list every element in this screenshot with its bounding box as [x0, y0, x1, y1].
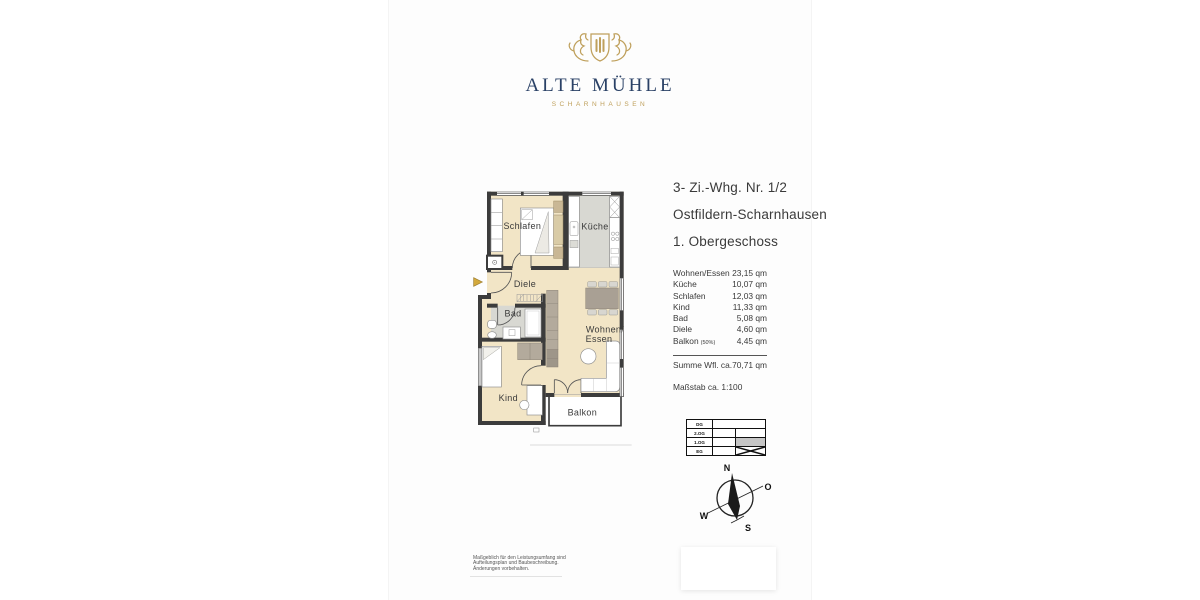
level-row-2og: 2.OG	[687, 428, 765, 437]
window-kind-left	[478, 348, 482, 385]
area-row: Wohnen/Essen 23,15 qm	[673, 268, 767, 279]
room-label: Wohnen/Essen	[673, 268, 730, 279]
area-row: Kind 11,33 qm	[673, 302, 767, 313]
level-cell	[713, 420, 765, 428]
wardrobe	[491, 199, 502, 252]
kitchen-sink	[570, 222, 578, 236]
dresser	[554, 215, 563, 244]
level-cell	[713, 447, 736, 455]
sum-row: Summe Wfl. ca. 70,71 qm	[673, 360, 767, 371]
tv-board	[547, 290, 558, 349]
compass-n-label: N	[724, 463, 731, 473]
level-row-dg: DG	[687, 420, 765, 428]
level-row-eg: EG	[687, 446, 765, 455]
room-label-kueche: Küche	[581, 221, 608, 231]
washer	[503, 327, 520, 339]
scale-note: Maßstab ca. 1:100	[673, 382, 767, 392]
room-area: 12,03 qm	[732, 291, 767, 302]
window-wohnen-right-1	[620, 278, 624, 310]
level-row-1og-highlighted: 1.OG	[687, 437, 765, 446]
level-label: DG	[687, 420, 713, 428]
room-label: Schlafen	[673, 291, 706, 302]
room-area: 4,45 qm	[737, 336, 767, 347]
level-label: 2.OG	[687, 429, 713, 437]
sum-label: Summe Wfl. ca.	[673, 360, 732, 371]
crest-lion-left	[569, 34, 588, 61]
entrance-arrow-icon	[474, 278, 483, 287]
dining-table	[586, 288, 619, 309]
window-wohnen-right-3	[620, 368, 624, 397]
area-row: Diele 4,60 qm	[673, 324, 767, 335]
room-area: 11,33 qm	[733, 302, 767, 313]
floorplan-document-page: ALTE MÜHLE SCHARNHAUSEN 3- Zi.-Whg. Nr. …	[388, 0, 812, 600]
level-cell	[713, 429, 736, 437]
building-section-diagram: DG 2.OG 1.OG EG	[686, 419, 766, 456]
shower	[525, 309, 541, 337]
brand-subtitle: SCHARNHAUSEN	[389, 101, 811, 108]
window-schlafen-top	[497, 192, 549, 196]
desk	[527, 386, 542, 415]
area-table: Wohnen/Essen 23,15 qm Küche 10,07 qm Sch…	[673, 268, 767, 392]
room-label-kind: Kind	[499, 393, 518, 403]
room-label-balkon: Balkon	[568, 407, 598, 417]
compass-o-label: O	[764, 482, 771, 492]
level-label: EG	[687, 447, 713, 455]
crest-lion-right	[612, 34, 631, 61]
room-label: Kind	[673, 302, 690, 313]
toilet	[488, 320, 497, 328]
balkon-percentage-note: (50%)	[701, 340, 716, 346]
footer-rule	[470, 576, 562, 577]
brand-crest-icon	[554, 30, 646, 68]
sum-value: 70,71 qm	[732, 360, 767, 371]
washbasin	[488, 332, 497, 339]
level-cell	[713, 438, 736, 446]
area-row: Bad 5,08 qm	[673, 313, 767, 324]
stamp-box	[681, 547, 776, 590]
room-label: Küche	[673, 279, 697, 290]
room-label-schlafen: Schlafen	[503, 221, 541, 231]
desk-chair	[520, 400, 529, 409]
room-area: 5,08 qm	[737, 313, 767, 324]
nightstand	[554, 201, 563, 212]
nightstand	[554, 247, 563, 258]
crossed-level-cell	[736, 447, 765, 455]
room-area: 4,60 qm	[737, 324, 767, 335]
area-row: Küche 10,07 qm	[673, 279, 767, 290]
side-table	[581, 349, 596, 364]
location-title: Ostfildern-Scharnhausen	[673, 208, 803, 222]
crest-mill-bars	[596, 37, 605, 53]
room-area: 23,15 qm	[732, 268, 767, 279]
listing-title-block: 3- Zi.-Whg. Nr. 1/2 Ostfildern-Scharnhau…	[673, 181, 803, 262]
room-label-bad: Bad	[504, 308, 521, 318]
area-row: Balkon(50%) 4,45 qm	[673, 336, 767, 349]
compass-rose-icon: N O W S	[696, 460, 776, 535]
room-label-wohnen-2: Essen	[586, 334, 613, 344]
room-label: Balkon(50%)	[673, 336, 715, 349]
window-kueche-top	[582, 192, 611, 196]
area-row: Schlafen 12,03 qm	[673, 291, 767, 302]
floor-title: 1. Obergeschoss	[673, 235, 803, 249]
room-label: Bad	[673, 313, 688, 324]
apartment-title: 3- Zi.-Whg. Nr. 1/2	[673, 181, 803, 195]
kitchen-tall-units	[610, 196, 620, 217]
room-label: Diele	[673, 324, 692, 335]
room-label-wohnen-1: Wohnen/	[586, 324, 624, 334]
disclaimer-text: Maßgeblich für den Leistungsumfang sind …	[473, 556, 573, 572]
floorplan-drawing: Schlafen Küche Diele Bad Kind Wohnen/ Es…	[465, 183, 640, 448]
compass-w-label: W	[700, 511, 709, 521]
room-area: 10,07 qm	[732, 279, 767, 290]
cross-icon	[736, 447, 765, 455]
level-label: 1.OG	[687, 438, 713, 446]
compass-s-label: S	[745, 523, 751, 533]
level-cell	[736, 429, 765, 437]
room-label-diele: Diele	[514, 279, 536, 289]
highlighted-level-cell	[736, 438, 765, 446]
brand-name: ALTE MÜHLE	[389, 75, 811, 97]
sum-divider	[673, 355, 767, 356]
